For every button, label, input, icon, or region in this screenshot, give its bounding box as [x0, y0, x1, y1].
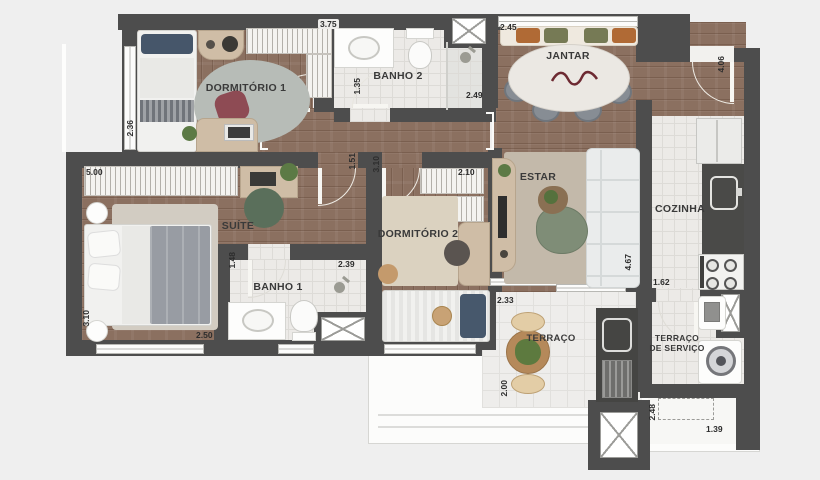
dim-servico-depth: 2.48 — [647, 404, 657, 421]
dim-cozinha-width: 1.62 — [653, 277, 670, 287]
room-label-jantar: JANTAR — [528, 50, 608, 62]
wall-top-right-block — [636, 14, 690, 62]
sofa-seam — [600, 150, 602, 286]
stove-knobs — [700, 256, 704, 288]
fridge — [696, 118, 742, 164]
dim-suite-width: 5.00 — [86, 167, 103, 177]
pillow-suite — [87, 229, 122, 258]
room-label-banho2: BANHO 2 — [352, 70, 444, 82]
future-equipment-outline — [658, 398, 714, 420]
wall-suite-left — [66, 152, 82, 356]
duct-shaft-bottom — [600, 412, 638, 458]
door-gap-banho2 — [350, 108, 390, 122]
terrace-chair — [511, 374, 545, 394]
stove-burner — [724, 277, 737, 290]
duvet-suite — [150, 226, 210, 324]
basin-banho2 — [348, 36, 380, 60]
pillow-dorm2 — [460, 294, 486, 338]
dim-terraco-depth: 2.00 — [499, 380, 509, 397]
room-label-dormitorio1: DORMITÓRIO 1 — [176, 82, 316, 94]
room-label-dormitorio2: DORMITÓRIO 2 — [356, 228, 480, 240]
dim-dorm1-depth: 2.36 — [125, 120, 135, 137]
room-label-suite: SUÍTE — [200, 220, 276, 232]
dim-dorm1-width: 3.75 — [318, 19, 339, 29]
sheet-suite — [122, 226, 150, 324]
laundry-tank-basin — [704, 302, 720, 322]
window-dorm2 — [384, 344, 476, 354]
dimension-extension-line — [62, 44, 66, 152]
washing-machine-hub — [716, 356, 726, 366]
stove-burner — [706, 277, 719, 290]
toilet-bowl-banho1 — [290, 300, 318, 332]
shower-head-banho1 — [334, 282, 345, 293]
bench-cushion-orange — [516, 28, 540, 43]
tv-estar — [498, 196, 507, 238]
chair-dorm2 — [444, 240, 470, 266]
shower-glass-banho2 — [446, 42, 448, 110]
striped-throw-dorm1 — [140, 100, 194, 122]
duct-shaft-top — [452, 18, 486, 44]
basin-banho1 — [242, 309, 274, 332]
bench-cushion-orange — [612, 28, 636, 43]
door-gap-banho1 — [248, 244, 290, 260]
toilet-tank-banho2 — [406, 28, 434, 39]
dim-estar-depth: 4.67 — [623, 254, 633, 271]
stove — [698, 254, 744, 290]
dim-suite-depth: 3.10 — [81, 310, 91, 327]
wall-dorm2-top — [422, 152, 492, 168]
toilet-tank-banho1 — [292, 332, 316, 341]
window-suite — [96, 344, 204, 354]
dim-dorm2-depth: 3.10 — [371, 156, 381, 173]
bench-cushion-olive — [544, 28, 568, 43]
terrace-grill — [602, 360, 632, 398]
coffee-table-estar — [536, 206, 588, 254]
decor-object-dorm1 — [206, 40, 215, 49]
wall-banho1-top — [214, 244, 372, 260]
shower-head-banho2 — [460, 52, 471, 63]
wall-lower-right — [736, 384, 760, 450]
dim-banho1-depth: 1.48 — [227, 252, 237, 269]
pillow-suite — [87, 263, 121, 292]
dim-suite-width2: 2.50 — [196, 330, 213, 340]
dim-corridor-width: 1.51 — [347, 153, 357, 170]
door-gap-servico — [656, 288, 700, 302]
room-label-cozinha: COZINHA — [645, 203, 715, 215]
bench-cushion-olive — [584, 28, 608, 43]
dim-dorm2-wardrobe: 2.10 — [458, 167, 475, 177]
decor-object-estar — [500, 250, 508, 258]
table-centerpiece-decor — [548, 66, 600, 90]
wall-right — [744, 48, 760, 388]
fridge-door-line — [716, 120, 718, 162]
duct-shaft-banho1 — [321, 317, 365, 341]
room-label-banho1: BANHO 1 — [232, 281, 324, 293]
wall-servico-bottom — [640, 384, 744, 398]
kitchen-faucet — [736, 188, 742, 196]
dim-banho2-depth: 1.35 — [352, 78, 362, 95]
room-label-terraco-servico: TERRAÇO DE SERVIÇO — [648, 334, 706, 354]
dim-banho2-width: 2.49 — [466, 90, 483, 100]
laptop-suite — [250, 172, 276, 186]
room-label-terraco: TERRAÇO — [520, 334, 582, 345]
wardrobe-dorm1 — [246, 28, 332, 54]
wardrobe-suite — [84, 166, 238, 196]
terrace-chair — [511, 312, 545, 332]
dim-hall-depth: 4.06 — [716, 56, 726, 73]
dim-terraco-width: 2.33 — [497, 295, 514, 305]
stove-burner — [724, 259, 737, 272]
stool-dorm2 — [378, 264, 398, 284]
nightstand-suite — [86, 202, 108, 224]
pillow-dorm1 — [141, 34, 193, 54]
plant-suite — [280, 163, 298, 181]
stove-burner — [706, 259, 719, 272]
laptop-screen-dorm1 — [228, 127, 250, 138]
door-gap-dorm2 — [382, 152, 422, 168]
window-banho1 — [278, 344, 314, 354]
lamp-dorm1 — [222, 36, 238, 52]
plant-coffee-table — [544, 190, 558, 204]
dim-jantar-width: 2.45 — [500, 22, 517, 32]
passage-marker-right — [486, 112, 494, 150]
round-cushion-dorm2 — [432, 306, 452, 326]
dim-servico-width: 1.39 — [706, 424, 723, 434]
floor-plan-canvas: DORMITÓRIO 1 BANHO 2 JANTAR SUÍTE DORMIT… — [0, 0, 820, 480]
plant-dorm1 — [182, 126, 197, 141]
terrace-sink — [602, 318, 632, 352]
dim-banho1-width: 2.39 — [338, 259, 355, 269]
room-label-estar: ESTAR — [506, 171, 570, 183]
door-gap-entry — [690, 46, 734, 62]
toilet-bowl-banho2 — [408, 41, 432, 69]
